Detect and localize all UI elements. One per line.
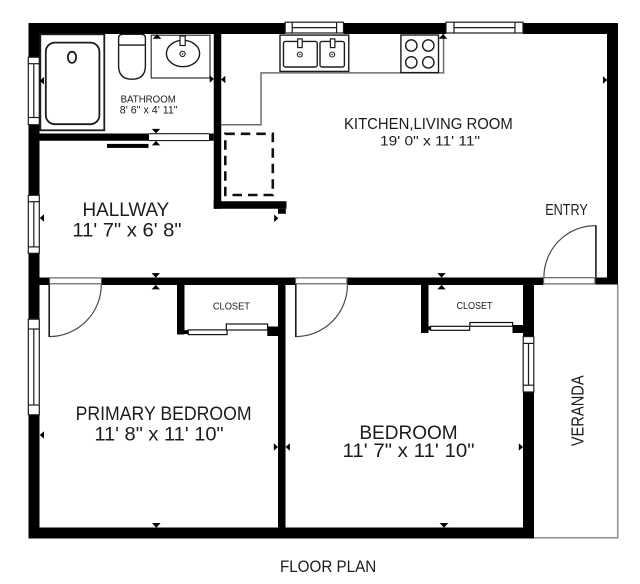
svg-text:8' 6" x 4' 11": 8' 6" x 4' 11" bbox=[120, 105, 178, 117]
svg-text:FLOOR PLAN: FLOOR PLAN bbox=[280, 558, 376, 576]
svg-text:VERANDA: VERANDA bbox=[568, 375, 588, 446]
svg-text:HALLWAY: HALLWAY bbox=[83, 200, 170, 221]
svg-text:CLOSET: CLOSET bbox=[456, 300, 493, 312]
svg-text:CLOSET: CLOSET bbox=[213, 300, 251, 312]
svg-text:11' 8" x 11' 10": 11' 8" x 11' 10" bbox=[94, 425, 223, 446]
svg-text:PRIMARY BEDROOM: PRIMARY BEDROOM bbox=[76, 404, 252, 425]
svg-text:ENTRY: ENTRY bbox=[545, 202, 588, 219]
svg-text:KITCHEN,LIVING ROOM: KITCHEN,LIVING ROOM bbox=[344, 116, 513, 133]
svg-text:11' 7" x 6' 8": 11' 7" x 6' 8" bbox=[72, 220, 181, 241]
svg-text:19' 0" x 11' 11": 19' 0" x 11' 11" bbox=[380, 133, 480, 149]
svg-text:11' 7" x 11' 10": 11' 7" x 11' 10" bbox=[343, 441, 475, 462]
